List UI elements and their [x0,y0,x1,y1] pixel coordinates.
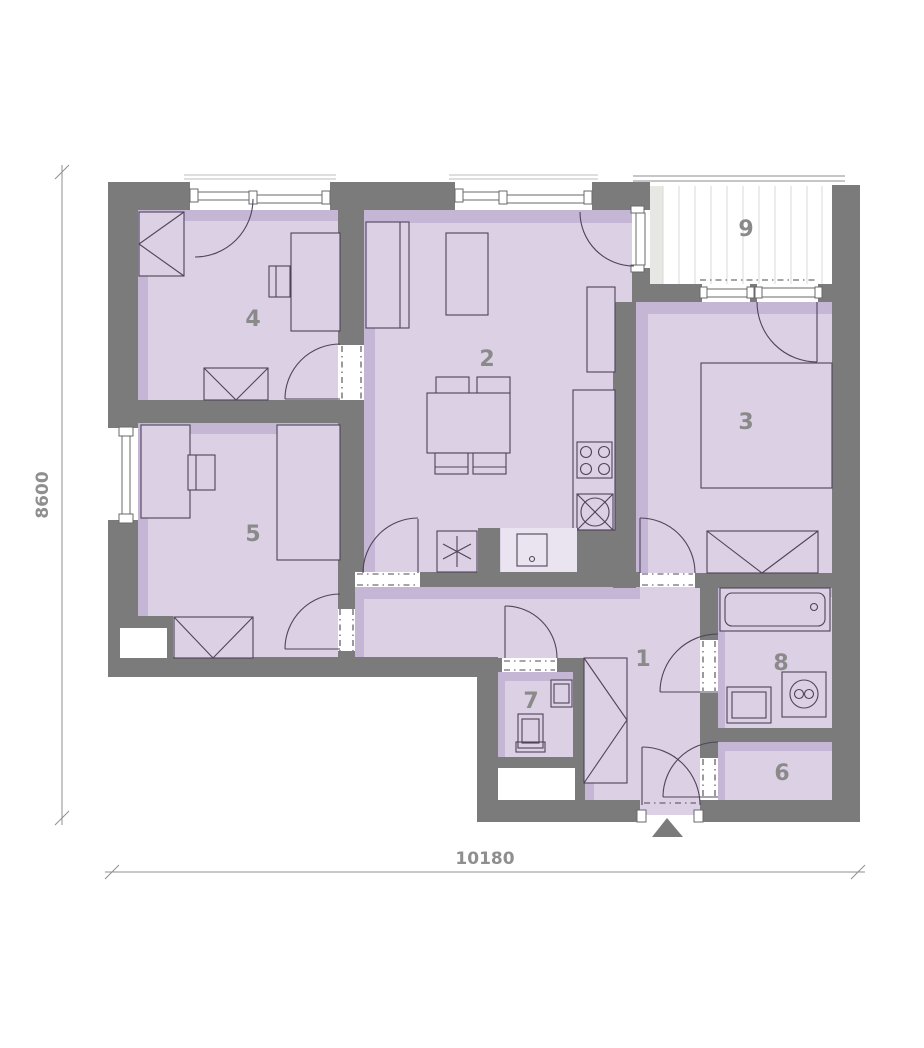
balcony-shade [650,186,663,284]
shadow [364,210,632,223]
window-casement [194,192,253,200]
wardrobe [174,617,253,658]
wall [338,587,355,609]
window-casement [122,434,130,515]
wall [700,800,860,822]
wall [613,302,636,588]
shadow [636,302,832,314]
bed [277,425,340,560]
chair [188,455,215,490]
chair [436,377,469,394]
wall [338,572,355,587]
dimension-height: 8600 [33,165,69,825]
coffee-table [446,233,488,315]
wall [650,284,702,302]
water-heater [437,531,477,572]
bathtub [720,588,830,631]
wall [173,657,498,677]
wall [330,182,455,210]
wall [478,528,500,572]
dimension-width-label: 10180 [455,849,514,869]
room-label-3: 3 [738,410,753,435]
room-label-6: 6 [774,761,789,786]
window-casement [253,195,326,203]
room-label-7: 7 [523,689,538,714]
wall [557,658,573,672]
wall [700,588,718,640]
dimension-height-label: 8600 [33,471,53,518]
shadow [355,587,640,599]
wall [700,728,832,742]
wall [577,528,617,572]
chair [473,453,506,474]
washbasin [727,687,771,723]
wall-recess [120,628,167,658]
floor-plan-drawing: 1 2 3 4 5 6 7 8 9 8600 10180 [0,0,924,1048]
fridge [587,287,615,372]
shadow [498,672,505,757]
window-room-5 [108,427,138,523]
wall-recess [498,768,575,800]
wall [420,572,640,587]
wall [108,400,340,423]
room-label-4: 4 [245,307,260,332]
wall [338,400,364,572]
dining-table [427,393,510,453]
washing-machine [782,672,826,717]
double-bed [701,363,832,488]
shadow [355,587,364,658]
shadow [718,742,725,800]
door-leaf [760,288,815,297]
wall [477,658,498,800]
window-room-3 [700,284,754,302]
wall [832,185,860,822]
window-casement [705,289,747,297]
window-casement [458,192,503,200]
wardrobe [204,368,268,400]
window-casement [503,195,588,203]
wall [338,210,364,345]
room-label-1: 1 [635,647,650,672]
room-3-furniture [701,363,832,573]
chair [269,266,290,297]
dimension-width: 10180 [105,849,865,879]
room-label-8: 8 [773,651,788,676]
shadow [636,302,648,573]
door-leaf [636,213,645,265]
room-label-9: 9 [738,217,753,242]
chair [435,453,468,474]
room-label-2: 2 [479,347,494,372]
floor-plan-page: 1 2 3 4 5 6 7 8 9 8600 10180 [0,0,924,1048]
desk [141,425,190,518]
wall [700,693,718,758]
wall [695,573,832,588]
wall [108,182,138,428]
window-room-2 [449,175,598,210]
chair [477,377,510,394]
wall [477,757,585,768]
wardrobe [584,658,627,783]
shadow [718,742,832,751]
sofa [366,222,409,328]
entrance-threshold [640,800,700,815]
wardrobe [139,212,184,276]
wall [477,800,640,822]
bed [291,233,340,331]
room-1-furniture [584,658,627,783]
room-label-5: 5 [245,522,260,547]
wall [632,268,650,302]
wall [338,651,355,658]
wardrobe [707,531,818,573]
balcony-railing [633,176,845,181]
utility-niche [501,528,577,572]
